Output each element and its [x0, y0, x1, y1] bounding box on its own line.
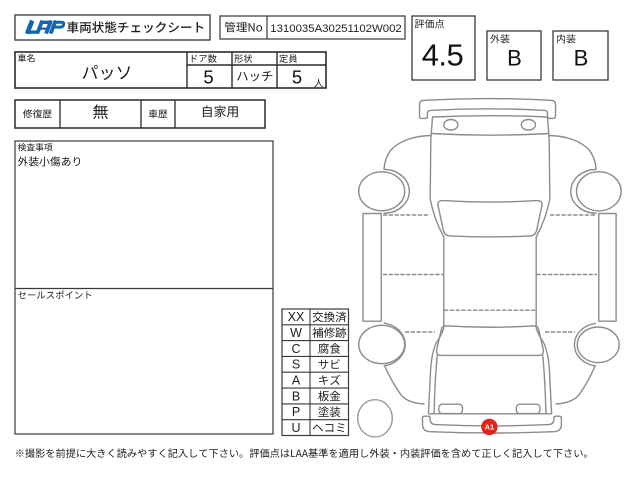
svg-text:XX: XX — [288, 310, 305, 324]
svg-text:S: S — [292, 358, 300, 372]
svg-text:C: C — [291, 342, 300, 356]
svg-text:5: 5 — [292, 67, 302, 88]
svg-text:1310035A30251102W002: 1310035A30251102W002 — [270, 23, 402, 35]
svg-text:W: W — [290, 326, 302, 340]
svg-text:P: P — [292, 405, 300, 419]
svg-text:A1: A1 — [485, 423, 495, 432]
svg-text:4.5: 4.5 — [422, 38, 464, 73]
svg-text:U: U — [291, 421, 300, 435]
svg-text:B: B — [292, 389, 300, 403]
svg-text:5: 5 — [203, 67, 213, 88]
svg-text:B: B — [574, 46, 589, 71]
svg-text:A: A — [292, 373, 301, 387]
svg-text:B: B — [507, 46, 522, 71]
